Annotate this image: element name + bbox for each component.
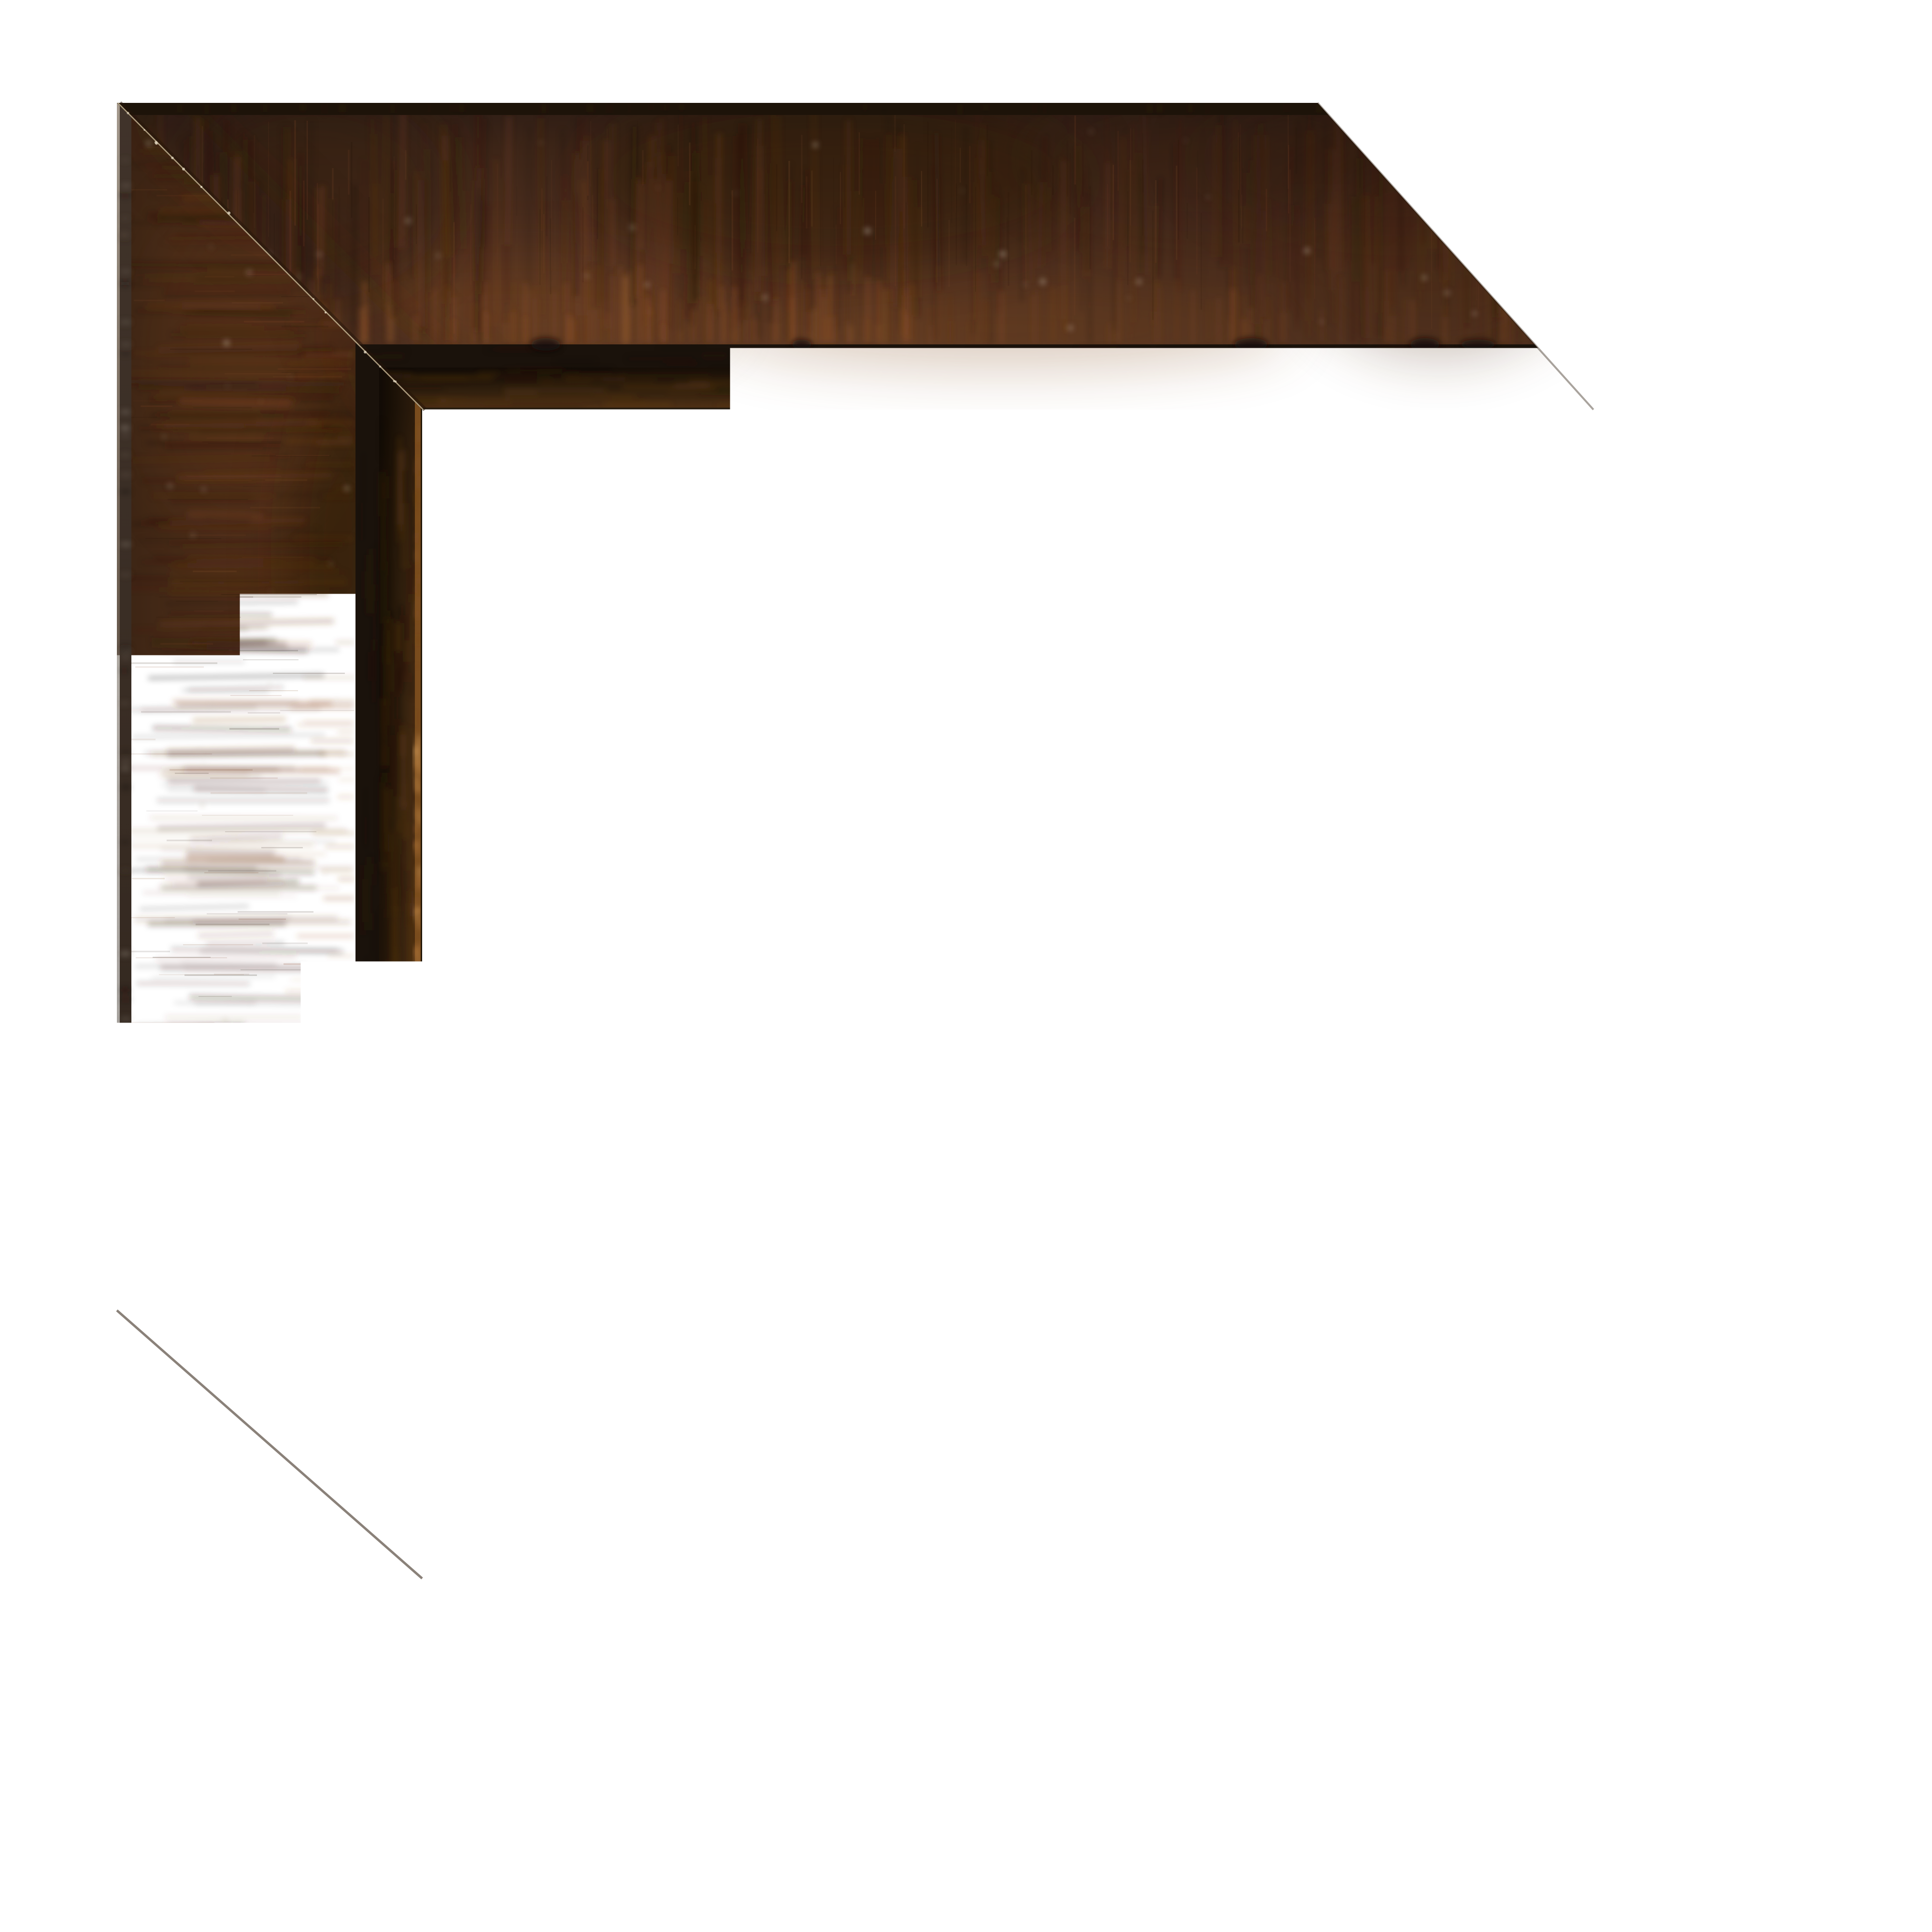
svg-text:49 mm: 49 mm bbox=[735, 1265, 778, 1384]
svg-text:28 mm: 28 mm bbox=[1026, 1613, 1145, 1656]
svg-text:37 mm: 37 mm bbox=[1028, 1717, 1147, 1760]
svg-text:30 mm: 30 mm bbox=[1402, 1342, 1445, 1460]
